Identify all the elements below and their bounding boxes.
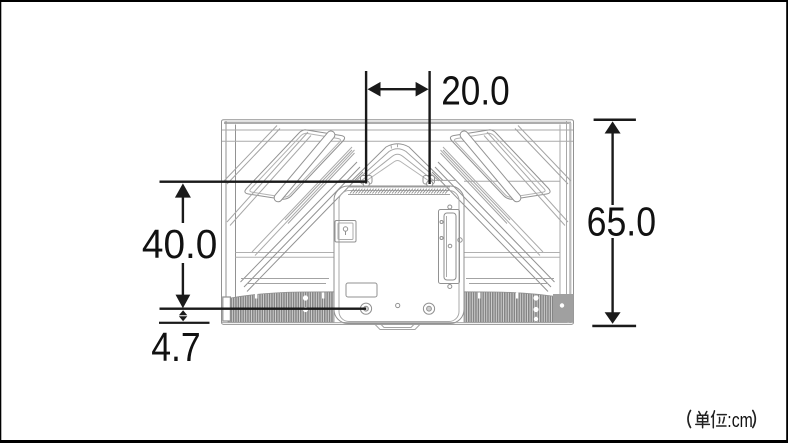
svg-text:40.0: 40.0 <box>142 221 218 267</box>
svg-text:20.0: 20.0 <box>441 67 510 113</box>
svg-text::cm: :cm <box>727 409 753 432</box>
svg-text:4.7: 4.7 <box>151 324 201 370</box>
svg-text:65.0: 65.0 <box>587 199 657 245</box>
